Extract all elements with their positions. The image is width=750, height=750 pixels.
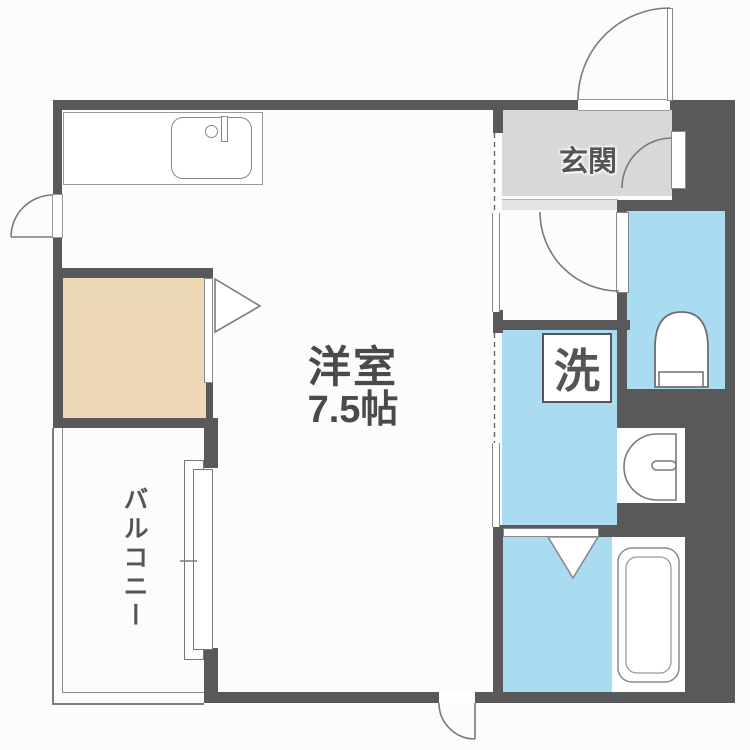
- room-partition-opening-upper: [492, 213, 500, 312]
- wall-room-bath: [493, 527, 503, 692]
- entrance-label: 玄関: [540, 138, 636, 180]
- left-door-opening: [52, 194, 63, 238]
- room-partition-opening-lower: [492, 443, 500, 527]
- corridor-door-leaf: [616, 212, 629, 293]
- wall-balcony-upper: [204, 428, 218, 468]
- bathroom-floor: [502, 537, 612, 692]
- sink-area: [619, 428, 685, 503]
- wall-washroom-right: [617, 330, 627, 428]
- entrance-door-leaf: [667, 8, 673, 101]
- floor-plan: 洋室 7.5帖 玄関 洗 バルコニー: [0, 0, 750, 750]
- entrance-door-swing-icon: [578, 8, 670, 100]
- wall-left-closet: [53, 278, 63, 418]
- wall-closet-bottom: [53, 418, 218, 428]
- wall-sink-right-block: [685, 428, 735, 503]
- main-room-label: 洋室 7.5帖: [268, 346, 438, 431]
- wall-genkan-left-stub: [493, 110, 503, 133]
- left-door-swing-icon: [11, 195, 53, 237]
- wall-top-right: [670, 100, 735, 110]
- bathtub-area: [612, 537, 685, 692]
- main-room-size: 7.5帖: [268, 391, 438, 431]
- wall-toilet-top: [617, 200, 735, 211]
- wall-room-corridor-stub: [493, 310, 503, 333]
- laundry-pan: 洗: [542, 333, 612, 403]
- wall-left-upper: [53, 110, 62, 195]
- balcony-label: バルコニー: [116, 486, 152, 656]
- wall-bath-right-block: [685, 537, 735, 700]
- wall-sink-bottom: [617, 503, 735, 537]
- balcony-window-panel-b: [193, 469, 213, 650]
- main-room-name: 洋室: [268, 346, 438, 391]
- laundry-label: 洗: [554, 335, 600, 401]
- kitchen-faucet-icon: [205, 125, 218, 138]
- closet-floor: [63, 278, 206, 418]
- wall-closet-top: [53, 268, 213, 278]
- entrance-door-opening: [578, 99, 670, 111]
- entrance-side-door-leaf: [671, 131, 686, 189]
- corridor-door-swing-icon: [540, 212, 619, 291]
- bathroom-door-bar: [503, 528, 599, 537]
- closet-door-leaf: [204, 278, 213, 383]
- wall-toilet-bottom: [627, 389, 735, 428]
- bottom-door-opening: [439, 692, 475, 703]
- kitchen-faucet-handle-icon: [221, 116, 228, 142]
- entrance-step: [502, 199, 618, 210]
- closet-door-triangle-icon: [215, 279, 260, 332]
- bottom-door-swing-icon: [439, 703, 475, 739]
- wall-top-left: [53, 100, 578, 110]
- wall-corridor-bottom: [493, 320, 630, 330]
- toilet-floor: [627, 211, 725, 389]
